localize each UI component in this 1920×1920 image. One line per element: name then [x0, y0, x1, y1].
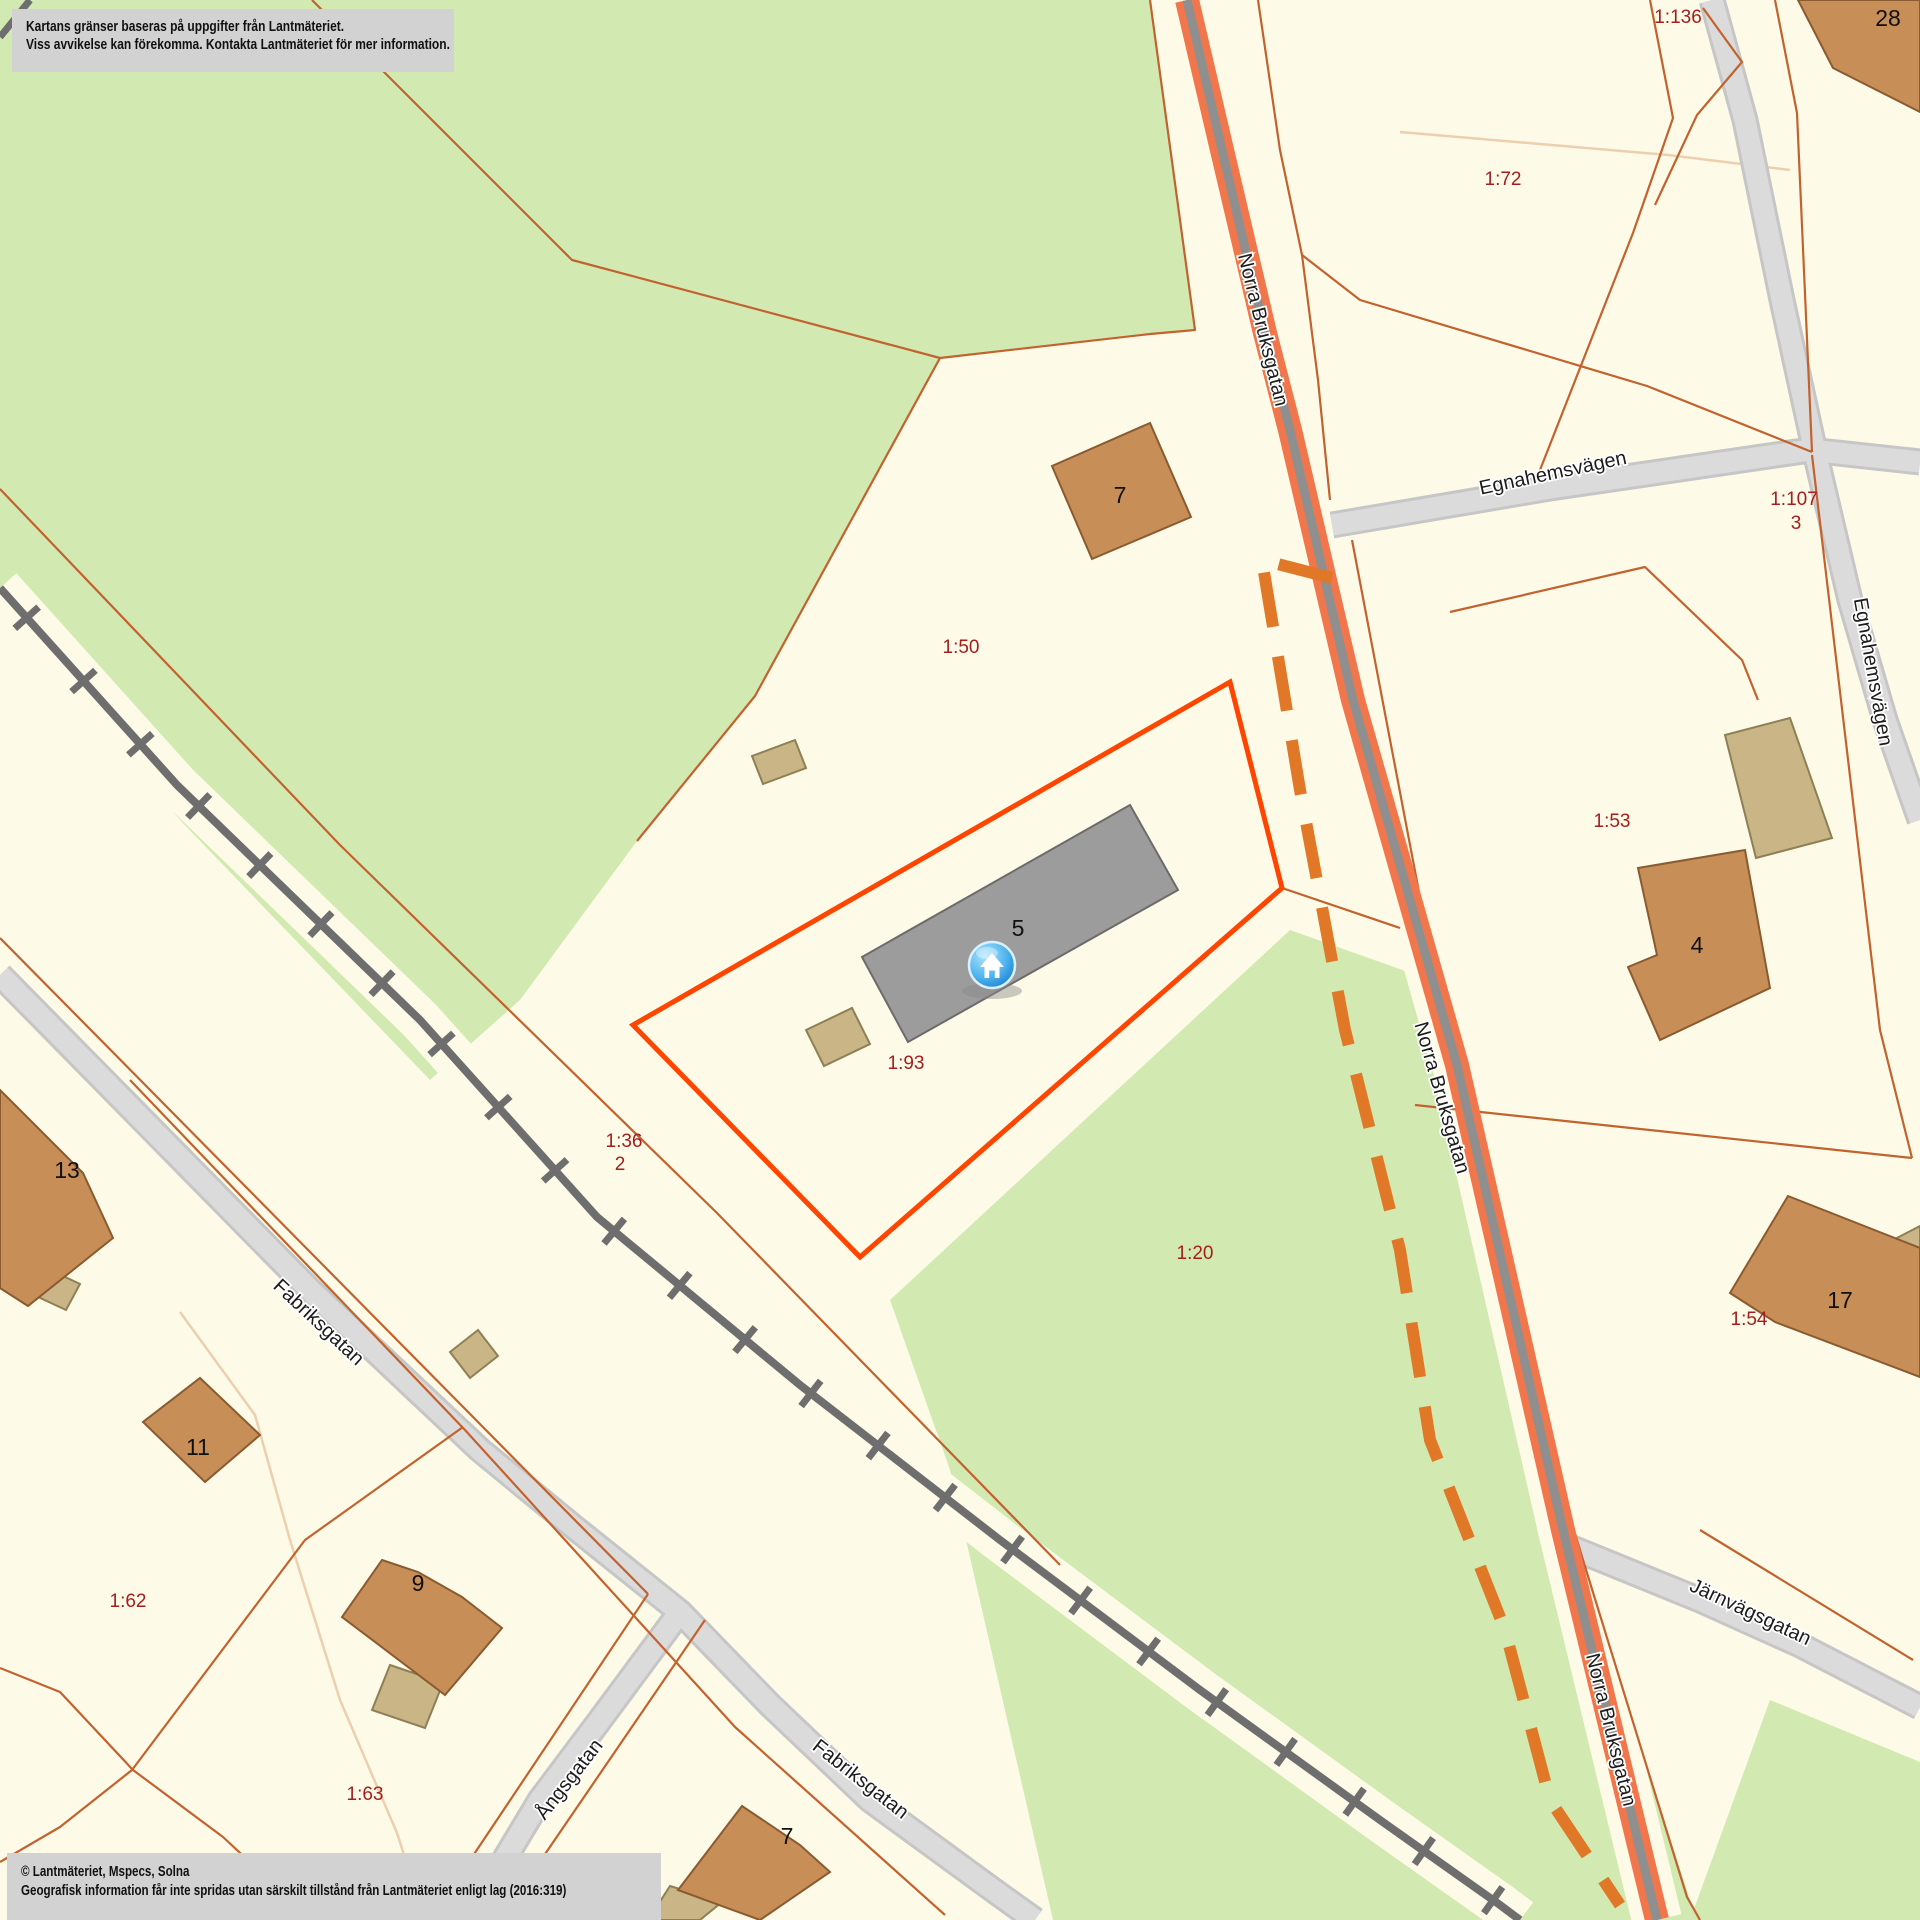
map-stage: Norra BruksgatanNorra BruksgatanNorra Br…	[0, 0, 1920, 1920]
parcel-label: 3	[1791, 513, 1802, 534]
parcel-label: 2	[615, 1154, 626, 1175]
parcel-label: 1:54	[1731, 1309, 1768, 1330]
parcel-label: 1:93	[888, 1053, 925, 1074]
building-label: 7	[1114, 482, 1127, 508]
building-label: 17	[1827, 1287, 1853, 1313]
parcel-label: 1:107	[1770, 489, 1818, 510]
parcel-label: 1:72	[1485, 169, 1522, 190]
building-label: 28	[1875, 5, 1901, 31]
parcel-label: 1:50	[943, 637, 980, 658]
map-copyright: © Lantmäteriet, Mspecs, Solna Geografisk…	[7, 1853, 661, 1920]
building-label: 9	[412, 1570, 425, 1596]
parcel-label: 1:136	[1654, 7, 1702, 28]
parcel-label: 1:63	[347, 1784, 384, 1805]
disclaimer-line2: Viss avvikelse kan förekomma. Kontakta L…	[26, 36, 368, 54]
map-canvas[interactable]: Norra BruksgatanNorra BruksgatanNorra Br…	[0, 0, 1920, 1920]
marker-gloss	[976, 947, 998, 959]
map-disclaimer: Kartans gränser baseras på uppgifter frå…	[12, 9, 454, 72]
parcel-label: 1:62	[110, 1591, 147, 1612]
copyright-line1: © Lantmäteriet, Mspecs, Solna	[21, 1863, 533, 1882]
parcel-label: 1:20	[1177, 1243, 1214, 1264]
parcel-label: 1:36	[606, 1131, 643, 1152]
building-label: 11	[186, 1434, 210, 1460]
copyright-line2: Geografisk information får inte spridas …	[21, 1882, 533, 1901]
building-label: 13	[54, 1157, 80, 1183]
building-label: 4	[1691, 932, 1704, 958]
building-label: 7	[781, 1823, 794, 1849]
building-label: 5	[1012, 915, 1025, 941]
parcel-label: 1:53	[1594, 811, 1631, 832]
disclaimer-line1: Kartans gränser baseras på uppgifter frå…	[26, 18, 368, 36]
